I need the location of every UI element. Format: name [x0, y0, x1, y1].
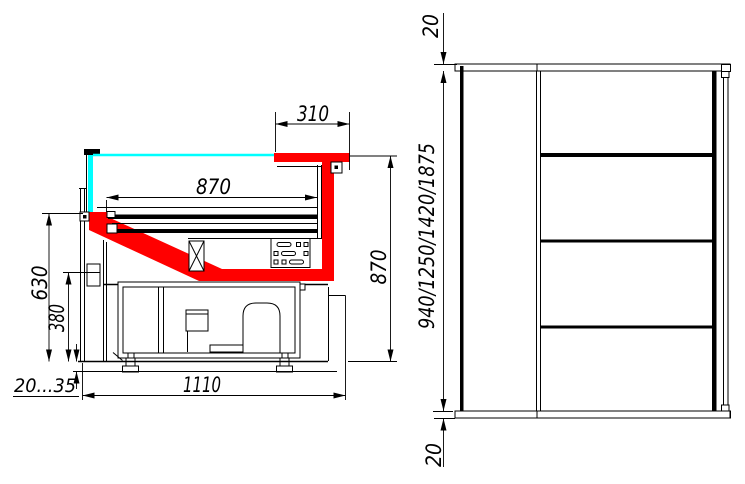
shelf-1: [541, 153, 712, 157]
duct-bottom-band: [203, 269, 334, 281]
compressor: [243, 303, 280, 353]
deck-support: [189, 241, 204, 271]
drain-tray: [210, 345, 243, 352]
starter-box: [186, 310, 208, 331]
front-glass-panel: [88, 155, 93, 212]
dim-top-panel: 20: [419, 14, 443, 38]
glass-clamp-top: [722, 65, 731, 72]
rear-step: [329, 287, 346, 361]
dim-foot-adjust: 20...35: [14, 375, 76, 397]
dim-deck-length: 870: [196, 175, 231, 199]
glass-clamp-bottom: [722, 405, 730, 411]
dim-counter-height: 630: [28, 266, 52, 301]
dim-rear-height: 870: [367, 250, 391, 285]
rear-wall: [712, 71, 717, 411]
duct-rear-stem: [322, 160, 334, 281]
canopy-bracket-bolt: [335, 166, 339, 170]
top-panel: [455, 64, 730, 71]
display-case-drawing: 310 870 630 380 20...35 1110 870: [0, 0, 745, 484]
dim-bottom-panel: 20: [422, 443, 446, 467]
side-view: [455, 64, 731, 418]
dim-base-height: 380: [45, 304, 69, 332]
dim-height-options: 940/1250/1420/1875: [415, 143, 439, 329]
canopy-duct: [274, 153, 350, 162]
shelf-2: [541, 240, 712, 243]
shelf-3: [541, 326, 712, 329]
machine-compartment: [113, 282, 300, 361]
bottom-panel: [455, 411, 730, 418]
dim-canopy-depth: 310: [297, 102, 329, 126]
side-dimensions: 20 940/1250/1420/1875 20: [415, 13, 457, 467]
dim-overall-depth: 1110: [183, 373, 221, 397]
technical-drawing-page: 310 870 630 380 20...35 1110 870: [0, 0, 745, 484]
side-wall: [460, 66, 464, 411]
